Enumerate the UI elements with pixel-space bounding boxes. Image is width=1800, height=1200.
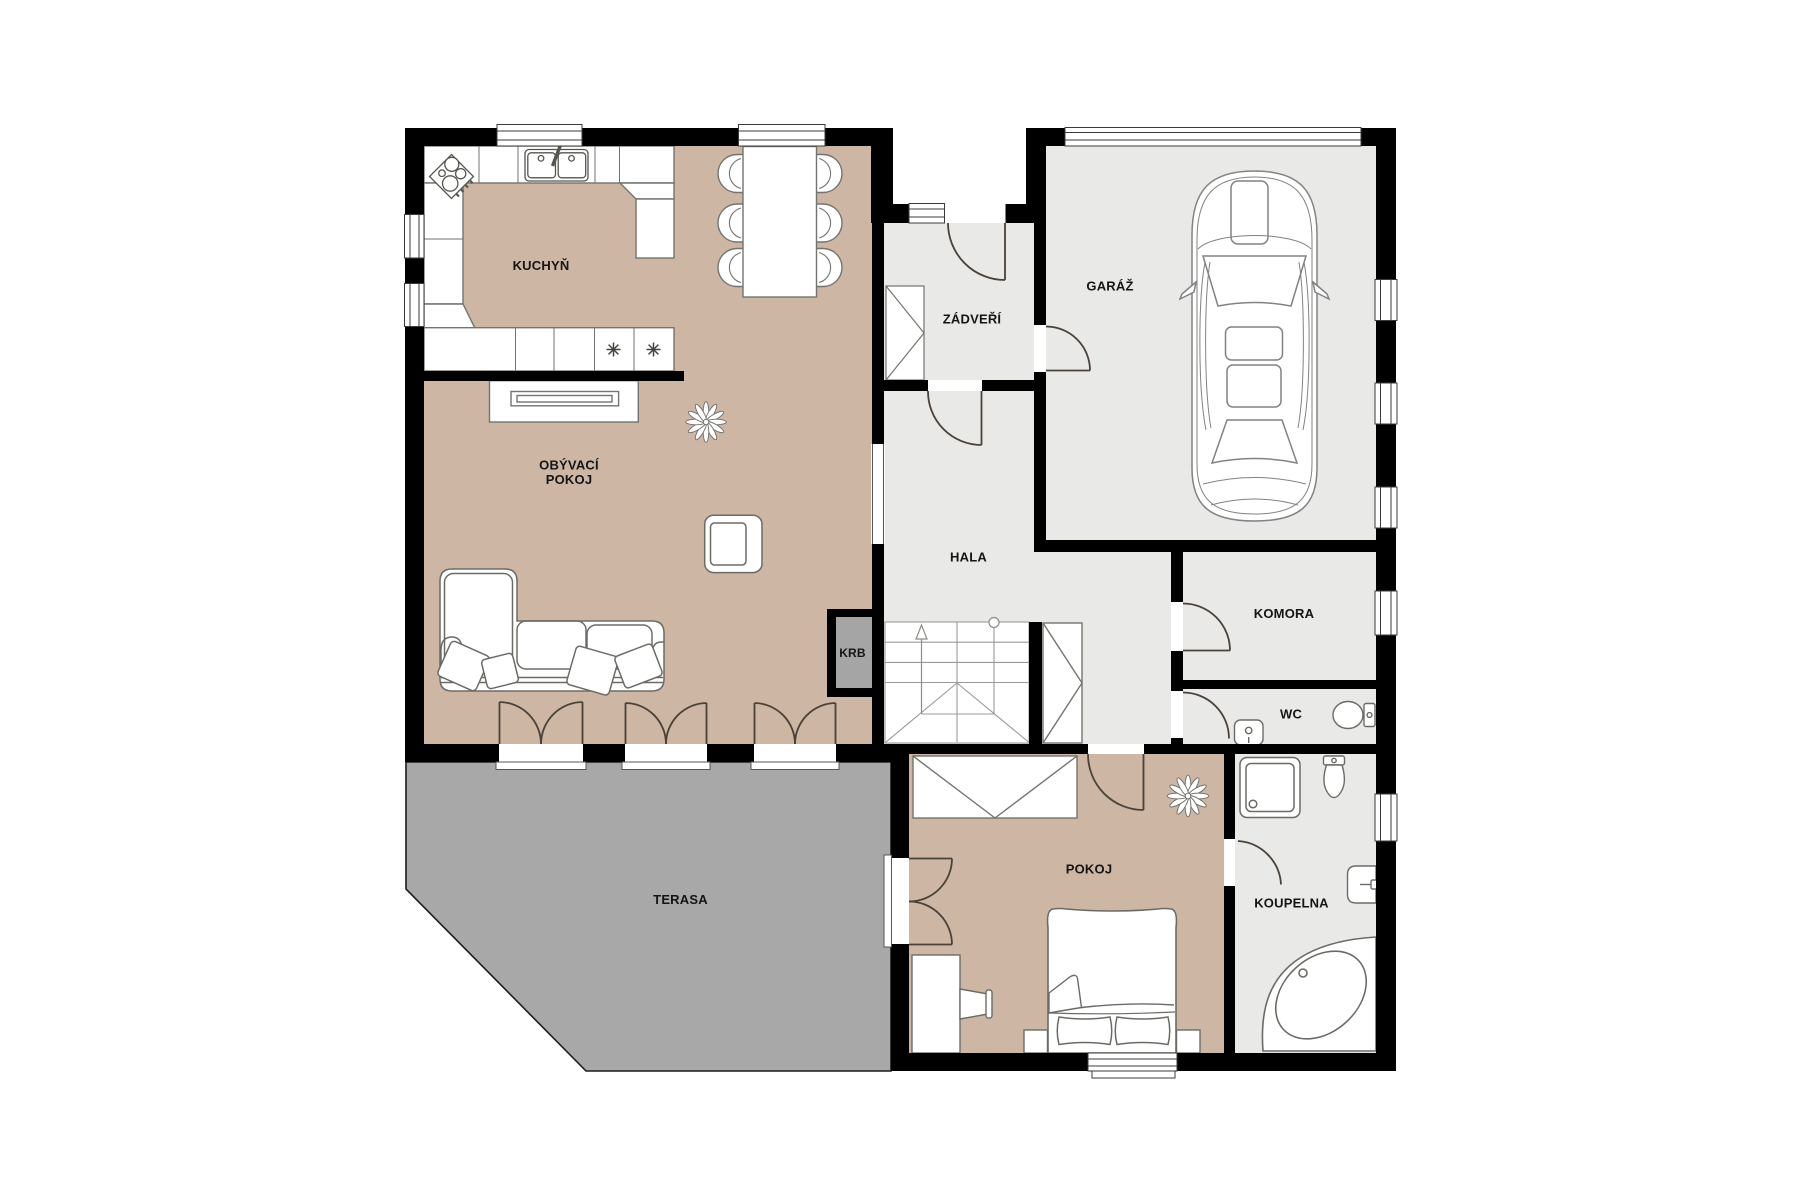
svg-text:POKOJ: POKOJ — [1066, 862, 1113, 877]
svg-text:KOUPELNA: KOUPELNA — [1254, 896, 1329, 911]
svg-text:TERASA: TERASA — [653, 892, 708, 907]
svg-text:KUCHYŇ: KUCHYŇ — [513, 258, 570, 273]
svg-text:WC: WC — [1280, 707, 1302, 722]
svg-text:GARÁŽ: GARÁŽ — [1086, 279, 1133, 294]
svg-text:KRB: KRB — [839, 646, 866, 660]
svg-text:ZÁDVEŘÍ: ZÁDVEŘÍ — [943, 312, 1002, 327]
svg-text:KOMORA: KOMORA — [1254, 606, 1315, 621]
svg-text:HALA: HALA — [950, 550, 987, 565]
svg-text:OBÝVACÍ: OBÝVACÍ — [539, 458, 599, 473]
svg-text:POKOJ: POKOJ — [546, 472, 593, 487]
